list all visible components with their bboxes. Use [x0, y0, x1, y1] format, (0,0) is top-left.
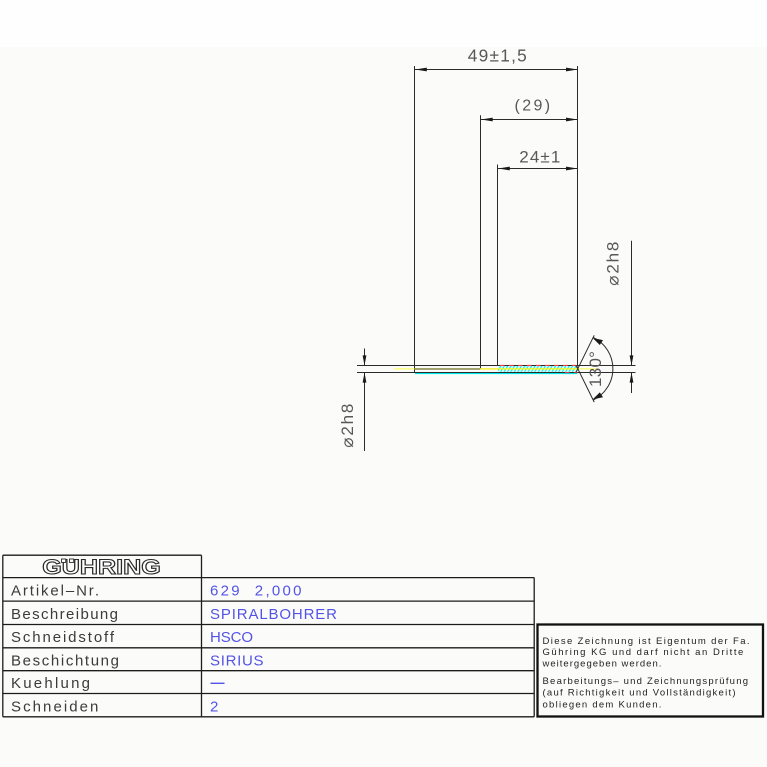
svg-text:weitergegeben werden.: weitergegeben werden. [542, 659, 662, 670]
svg-text:(auf Richtigkeit und Vollständ: (auf Richtigkeit und Vollständigkeit) [543, 688, 736, 699]
svg-text:Artikel–Nr.: Artikel–Nr. [11, 582, 99, 599]
svg-text:Bearbeitungs– und Zeichnungspr: Bearbeitungs– und Zeichnungsprüfung [543, 676, 749, 687]
svg-text:Schneidstoff: Schneidstoff [11, 629, 115, 646]
svg-text:Beschreibung: Beschreibung [11, 606, 118, 623]
svg-text:629 2,000: 629 2,000 [210, 582, 302, 599]
svg-text:HSCO: HSCO [210, 629, 253, 646]
svg-text:SPIRALBOHRER: SPIRALBOHRER [210, 606, 337, 623]
svg-text:Schneiden: Schneiden [11, 699, 98, 716]
svg-text:Beschichtung: Beschichtung [11, 652, 119, 669]
svg-text:130°: 130° [586, 351, 605, 387]
svg-text:Kuehlung: Kuehlung [11, 675, 90, 692]
svg-text:Diese Zeichnung ist Eigentum d: Diese Zeichnung ist Eigentum der Fa. [543, 636, 750, 647]
svg-text:24±1: 24±1 [519, 148, 560, 167]
svg-text:49±1,5: 49±1,5 [468, 46, 527, 66]
svg-text:2: 2 [210, 699, 218, 716]
svg-text:Gühring KG und darf nicht an D: Gühring KG und darf nicht an Dritte [543, 647, 744, 658]
svg-text:obliegen dem Kunden.: obliegen dem Kunden. [543, 699, 662, 710]
svg-text:SIRIUS: SIRIUS [210, 652, 264, 669]
svg-text:GUHRING: GUHRING [42, 555, 161, 579]
